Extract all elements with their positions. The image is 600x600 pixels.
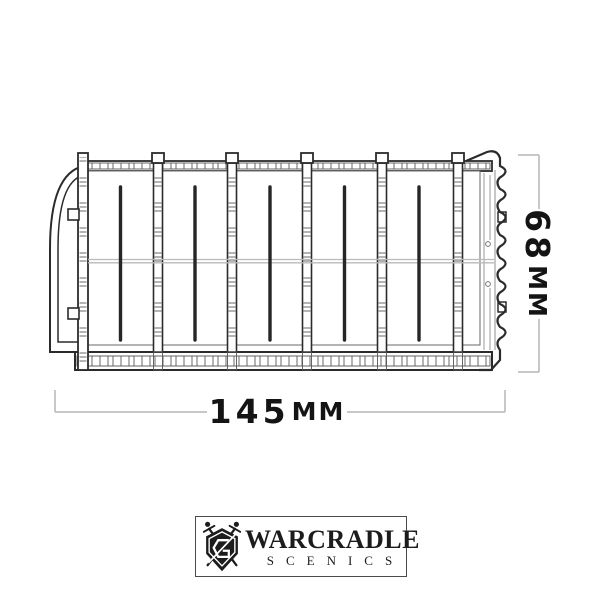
frame-post: [228, 163, 237, 352]
logo-text: WARCRADLE SCENICS: [245, 527, 420, 567]
frame-post: [378, 163, 387, 352]
frame-post: [454, 163, 463, 352]
warcradle-logo: WARCRADLE SCENICS: [195, 516, 407, 577]
rivet-hole: [486, 242, 491, 247]
height-dimension-label: 68MM: [518, 209, 558, 319]
width-unit: MM: [292, 399, 346, 424]
frame-post: [154, 163, 163, 352]
container-end-cap: [484, 173, 490, 350]
rivet-hole: [486, 282, 491, 287]
width-value: 145: [209, 395, 290, 428]
frame-post: [303, 163, 312, 352]
container-bottom-rail: [75, 352, 492, 370]
container-top-rail: [86, 161, 492, 171]
logo-sub-brand: SCENICS: [251, 554, 420, 567]
warcradle-shield-icon: [199, 519, 245, 575]
hinge: [68, 308, 79, 319]
height-unit: MM: [526, 265, 551, 319]
height-value: 68: [522, 209, 555, 263]
width-dimension-label: 145MM: [207, 391, 347, 431]
product-dimension-diagram: 145MM 68MM WARCRADLE: [0, 0, 600, 600]
container-left-post: [78, 153, 88, 370]
container-wall-panel: [88, 171, 480, 345]
container-side-drawing: [0, 0, 600, 600]
hinge: [68, 209, 79, 220]
logo-brand: WARCRADLE: [245, 527, 420, 553]
